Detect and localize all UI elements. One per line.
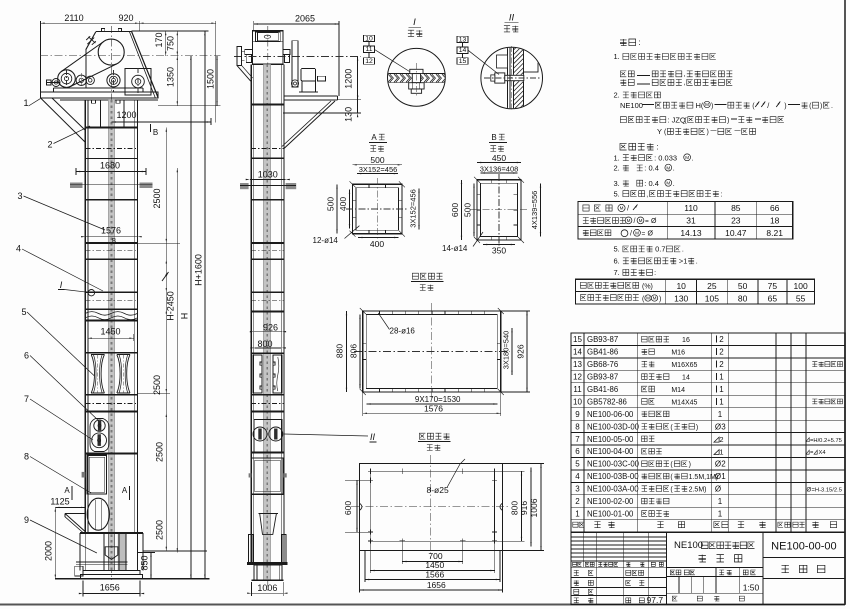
svg-text:: 0.4: : 0.4 [644, 164, 659, 173]
svg-text:0.7: 0.7 [655, 245, 665, 254]
svg-text:1680: 1680 [100, 161, 120, 171]
svg-text:1656: 1656 [100, 583, 120, 593]
svg-text:.: . [673, 181, 675, 188]
svg-text:4: 4 [16, 244, 21, 254]
svg-text:14: 14 [573, 348, 582, 357]
svg-text:500: 500 [463, 203, 473, 217]
svg-text:2.: 2. [614, 91, 620, 100]
svg-text:1: 1 [575, 509, 580, 518]
svg-text:25: 25 [707, 281, 717, 291]
svg-text:12-ø14: 12-ø14 [313, 236, 339, 245]
svg-text:NE100-00-00: NE100-00-00 [771, 540, 836, 552]
svg-text:: 0.033: : 0.033 [654, 153, 677, 162]
svg-text:880: 880 [335, 344, 345, 358]
svg-text:97.7: 97.7 [647, 595, 664, 605]
svg-text:1656: 1656 [427, 580, 446, 590]
svg-text:A: A [122, 486, 128, 495]
svg-text::: : [720, 191, 722, 198]
svg-text:Ø: Ø [651, 218, 657, 225]
svg-text:Ø: Ø [648, 231, 654, 238]
svg-text:50: 50 [738, 281, 748, 291]
svg-text:NE100-05-00: NE100-05-00 [587, 435, 634, 444]
svg-text:13: 13 [459, 36, 467, 43]
svg-text:5: 5 [575, 460, 580, 469]
svg-text:1: 1 [718, 509, 723, 518]
svg-text:5: 5 [21, 307, 26, 317]
svg-text:31: 31 [686, 216, 696, 226]
svg-text:3: 3 [17, 191, 22, 201]
svg-text:): ) [727, 117, 729, 124]
svg-text:10: 10 [676, 281, 686, 291]
svg-text:806: 806 [348, 344, 358, 358]
svg-text:NE100-03A-00: NE100-03A-00 [587, 485, 639, 494]
svg-text:5.: 5. [614, 245, 620, 254]
svg-text:6: 6 [24, 351, 29, 361]
svg-text:916: 916 [519, 501, 529, 515]
svg-text:10.47: 10.47 [725, 228, 747, 238]
svg-text:GB68-76: GB68-76 [587, 360, 618, 369]
svg-text:14-ø14: 14-ø14 [442, 244, 468, 253]
svg-text:1576: 1576 [101, 226, 121, 236]
svg-text:3X180=540: 3X180=540 [501, 331, 510, 370]
svg-text:,: , [646, 191, 648, 198]
svg-text:H+1600: H+1600 [193, 254, 203, 286]
svg-text:16: 16 [670, 337, 690, 344]
svg-text:8.21: 8.21 [766, 228, 783, 238]
svg-text:1200: 1200 [343, 69, 353, 89]
svg-text:2: 2 [47, 140, 52, 150]
svg-text:2: 2 [721, 460, 726, 469]
svg-text:2: 2 [719, 435, 723, 444]
svg-text:3.: 3. [614, 179, 620, 188]
svg-text:II: II [509, 13, 515, 24]
svg-text:1: 1 [718, 410, 723, 419]
svg-text:75: 75 [768, 281, 778, 291]
svg-text:10: 10 [365, 35, 373, 42]
svg-text:GB93-87: GB93-87 [587, 335, 618, 344]
svg-text:GB93-87: GB93-87 [587, 373, 618, 382]
svg-text:H: H [179, 313, 189, 320]
svg-text:9: 9 [24, 515, 29, 525]
svg-text:NE100-06-00: NE100-06-00 [587, 410, 634, 419]
svg-text:2.5M): 2.5M) [689, 487, 707, 494]
svg-text:4X139=556: 4X139=556 [530, 191, 539, 230]
svg-text:A: A [371, 133, 377, 142]
svg-text:6: 6 [575, 447, 580, 456]
svg-text:800: 800 [510, 501, 520, 515]
svg-text:800: 800 [257, 339, 272, 349]
svg-text:M: M [666, 180, 670, 185]
svg-text:B: B [491, 133, 496, 142]
svg-text:10: 10 [573, 397, 582, 406]
svg-text:3: 3 [575, 485, 580, 494]
svg-text:5.: 5. [614, 189, 620, 198]
svg-text:): ) [707, 129, 709, 136]
svg-text:926: 926 [515, 344, 525, 358]
svg-text:M14: M14 [656, 387, 685, 394]
svg-text:M: M [685, 155, 689, 160]
svg-text:450: 450 [492, 153, 506, 163]
svg-text:14: 14 [459, 47, 467, 54]
svg-text:X4: X4 [819, 450, 827, 456]
svg-text:2500: 2500 [155, 520, 165, 540]
svg-text:2000: 2000 [44, 541, 54, 561]
svg-text:M: M [653, 296, 657, 301]
svg-text:=: = [642, 231, 646, 238]
svg-text:3X152=456: 3X152=456 [359, 165, 398, 174]
svg-text:600: 600 [343, 501, 353, 515]
svg-text:1.: 1. [614, 153, 620, 162]
svg-text:(%): (%) [642, 284, 653, 291]
svg-text:85: 85 [731, 203, 741, 213]
svg-text:M: M [639, 218, 643, 223]
svg-text:M14X45: M14X45 [656, 399, 698, 406]
svg-text:600: 600 [450, 203, 460, 217]
svg-text:2: 2 [575, 497, 580, 506]
svg-text:14: 14 [670, 375, 690, 382]
svg-text:66: 66 [770, 203, 780, 213]
svg-text:12: 12 [365, 58, 373, 65]
svg-text::: : [638, 38, 640, 47]
svg-text:=: = [645, 218, 649, 225]
svg-text:3X136=408: 3X136=408 [480, 164, 519, 173]
svg-text:GB41-86: GB41-86 [587, 348, 618, 357]
svg-text:): ) [689, 462, 691, 469]
svg-text:A: A [64, 486, 70, 495]
svg-text:.: . [831, 103, 833, 110]
svg-text:.: . [673, 166, 675, 173]
svg-text:2065: 2065 [295, 14, 315, 24]
svg-text:1: 1 [23, 98, 28, 108]
svg-text:.: . [682, 247, 684, 254]
svg-text::: : [657, 93, 659, 100]
svg-text:2: 2 [719, 360, 724, 369]
svg-text:9: 9 [575, 410, 580, 419]
svg-text:H(: H( [696, 101, 704, 110]
svg-text:M: M [627, 218, 631, 223]
svg-text:1: 1 [719, 448, 723, 457]
svg-text:GB5782-86: GB5782-86 [587, 397, 627, 406]
svg-text:: 0.4: : 0.4 [644, 179, 659, 188]
svg-text:1:50: 1:50 [743, 583, 760, 593]
svg-text:8: 8 [24, 452, 29, 462]
svg-text:B: B [153, 128, 158, 137]
svg-text:7: 7 [24, 394, 29, 404]
svg-text:M: M [635, 230, 639, 235]
svg-text:M16X65: M16X65 [656, 362, 698, 369]
svg-text:750: 750 [166, 36, 176, 51]
svg-text:Ø: Ø [715, 460, 721, 469]
svg-text:): ) [711, 103, 713, 110]
svg-text:): ) [784, 103, 786, 110]
svg-text:II: II [370, 432, 376, 442]
svg-text:2: 2 [719, 348, 724, 357]
svg-text:1: 1 [719, 397, 724, 406]
svg-text:.: . [692, 155, 694, 162]
svg-text:15: 15 [459, 58, 467, 65]
svg-text:23: 23 [731, 216, 741, 226]
svg-text:M: M [666, 165, 670, 170]
svg-text:NE100-03D-00: NE100-03D-00 [587, 422, 640, 431]
svg-text:=H/0.2+5.75: =H/0.2+5.75 [810, 438, 842, 444]
svg-text:NE100-03C-00: NE100-03C-00 [587, 460, 640, 469]
svg-text:: JZQ: : JZQ [667, 115, 685, 124]
svg-text:350: 350 [492, 246, 506, 256]
svg-text:4: 4 [575, 472, 580, 481]
svg-text:NE100: NE100 [620, 101, 643, 110]
svg-text:1006: 1006 [257, 583, 277, 593]
svg-text:130: 130 [343, 107, 353, 122]
svg-text:,: , [683, 80, 685, 87]
svg-text:400: 400 [338, 197, 348, 211]
svg-text:850: 850 [139, 555, 149, 570]
svg-text:H-2450: H-2450 [166, 291, 176, 321]
svg-text:110: 110 [684, 203, 698, 213]
svg-text:/: / [630, 231, 632, 238]
svg-text:11: 11 [573, 385, 582, 394]
svg-text:1: 1 [721, 472, 726, 481]
svg-text:1006: 1006 [529, 498, 539, 517]
svg-text:M: M [646, 296, 650, 301]
svg-text:105: 105 [705, 293, 719, 303]
svg-text:2110: 2110 [64, 13, 83, 23]
svg-text:500: 500 [326, 197, 336, 211]
svg-text:11: 11 [365, 46, 372, 53]
svg-text:28-ø16: 28-ø16 [390, 327, 416, 336]
svg-text:130: 130 [674, 293, 688, 303]
svg-text:2.: 2. [614, 164, 620, 173]
svg-text:2500: 2500 [152, 188, 162, 208]
svg-text:1125: 1125 [50, 497, 69, 507]
svg-text:.: . [696, 259, 698, 266]
svg-text:3: 3 [721, 422, 726, 431]
svg-text:>1: >1 [679, 257, 688, 266]
svg-text:2: 2 [719, 335, 724, 344]
svg-text:8: 8 [575, 422, 580, 431]
svg-text:Ø: Ø [715, 422, 721, 431]
svg-text:80: 80 [738, 293, 748, 303]
svg-text::: : [654, 270, 656, 277]
svg-text:NE100-01-00: NE100-01-00 [587, 509, 634, 518]
svg-text:M16: M16 [656, 350, 685, 357]
svg-text:=H-3.15/2.5: =H-3.15/2.5 [812, 488, 842, 494]
svg-text:/: / [634, 218, 636, 225]
svg-text:1350: 1350 [166, 67, 176, 87]
svg-text:100: 100 [794, 281, 808, 291]
svg-text:1030: 1030 [258, 170, 278, 180]
svg-text:NE100-02-00: NE100-02-00 [587, 497, 634, 506]
svg-text:13: 13 [573, 360, 582, 369]
svg-text:2500: 2500 [152, 375, 162, 395]
svg-text:NE100: NE100 [674, 540, 703, 551]
svg-text:NE100-04-00: NE100-04-00 [587, 447, 634, 456]
svg-text:1566: 1566 [425, 569, 444, 579]
svg-text:): ) [820, 103, 822, 110]
svg-text:15: 15 [573, 335, 582, 344]
svg-text:B: B [112, 239, 116, 245]
svg-text:8-ø25: 8-ø25 [427, 485, 449, 495]
svg-text:1.5M,1M): 1.5M,1M) [689, 474, 719, 481]
svg-text:1.: 1. [614, 52, 620, 61]
svg-text:926: 926 [263, 323, 278, 333]
svg-text:7.: 7. [614, 268, 620, 277]
svg-text:): ) [659, 296, 661, 303]
svg-text:M: M [620, 206, 624, 211]
svg-text:6.: 6. [614, 257, 620, 266]
svg-text:1: 1 [719, 373, 724, 382]
svg-text::: : [656, 143, 658, 152]
svg-text:Ø: Ø [715, 485, 721, 494]
svg-text:,: , [683, 71, 685, 78]
svg-text:1: 1 [718, 497, 723, 506]
svg-text:400: 400 [370, 239, 384, 249]
svg-text:920: 920 [118, 13, 133, 23]
svg-text:18: 18 [770, 216, 780, 226]
svg-text:12: 12 [573, 373, 582, 382]
svg-text:Y: Y [657, 127, 662, 136]
svg-text:Ø: Ø [715, 472, 721, 481]
svg-text:170: 170 [154, 32, 164, 47]
svg-text:NE100-03B-00: NE100-03B-00 [587, 472, 639, 481]
svg-text:GB41-86: GB41-86 [587, 385, 618, 394]
svg-text:1: 1 [719, 385, 724, 394]
svg-text:1576: 1576 [424, 403, 443, 413]
svg-text:3X152=456: 3X152=456 [409, 189, 418, 228]
svg-text:1200: 1200 [116, 110, 136, 120]
svg-text:): ) [696, 424, 698, 431]
svg-text:7: 7 [575, 435, 580, 444]
svg-text:2500: 2500 [155, 442, 165, 462]
svg-text:M: M [705, 102, 709, 107]
svg-text:1450: 1450 [100, 327, 120, 337]
svg-text:500: 500 [370, 155, 384, 165]
svg-text:65: 65 [768, 293, 778, 303]
svg-text:55: 55 [796, 293, 806, 303]
svg-text:1500: 1500 [205, 69, 215, 89]
svg-text:14.13: 14.13 [680, 228, 702, 238]
svg-text:I: I [413, 17, 416, 28]
